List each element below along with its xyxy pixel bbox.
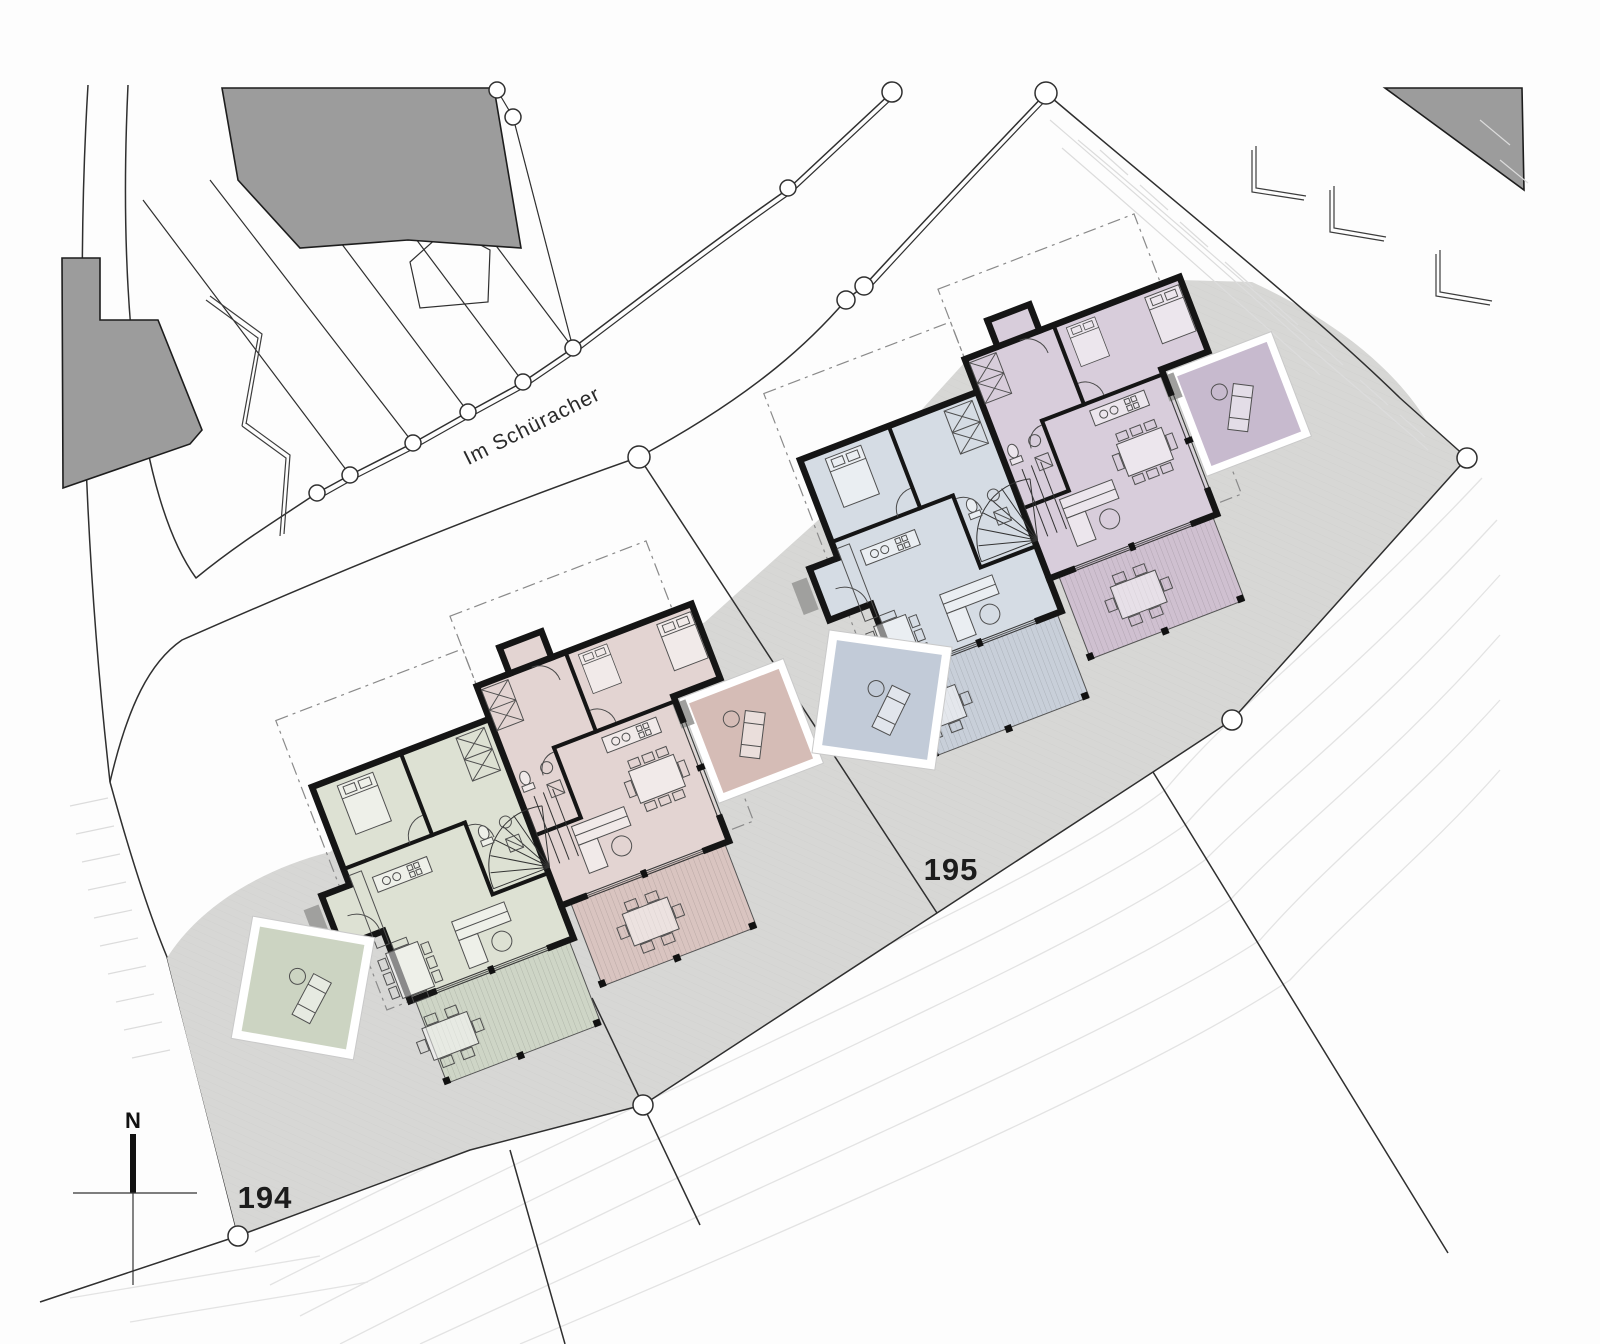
existing-building-west (62, 258, 202, 488)
patio-right-unit-a (812, 630, 952, 770)
parcel-195-label: 195 (924, 852, 979, 887)
site-plan-page: Im Schüracher 194 195 N (0, 0, 1600, 1344)
garden-walls (206, 296, 290, 536)
patio-left-unit-a (231, 916, 375, 1060)
parcel-194-label: 194 (238, 1180, 293, 1215)
site-plan-drawing: Im Schüracher 194 195 N (0, 0, 1600, 1344)
neighbor-wall-outlines (1252, 146, 1492, 305)
existing-building-north (222, 88, 521, 248)
north-arrow: N (73, 1108, 197, 1285)
north-label: N (125, 1108, 141, 1133)
street-label: Im Schüracher (460, 383, 604, 470)
north-arrow-bar (130, 1134, 136, 1193)
